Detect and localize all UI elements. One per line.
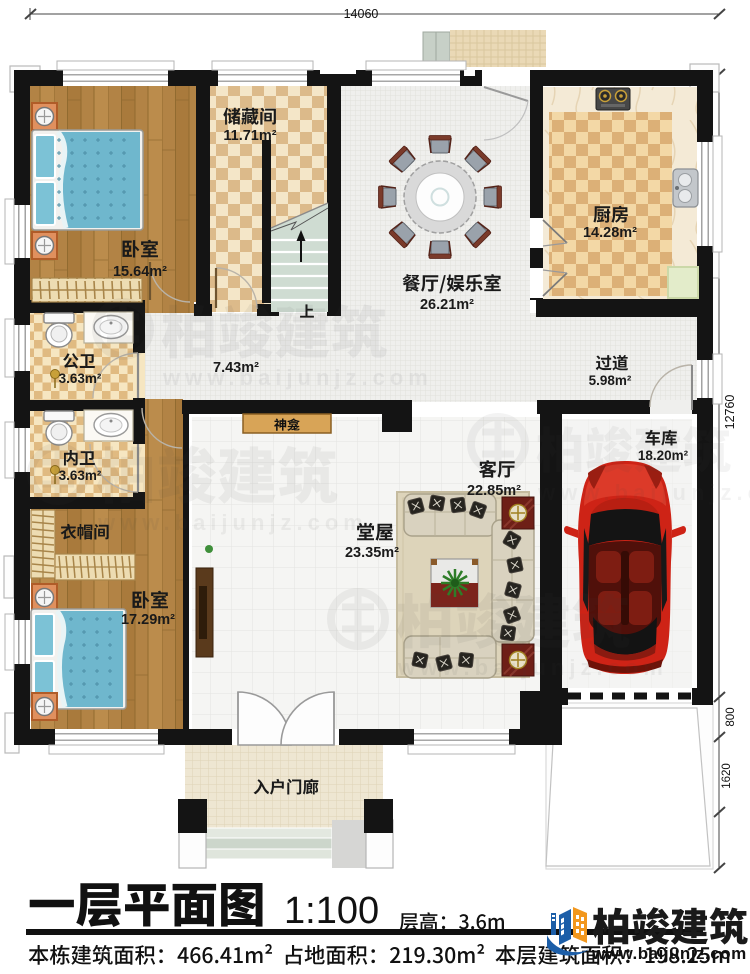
svg-text:5.98m²: 5.98m² (589, 373, 632, 388)
svg-text:12760: 12760 (723, 395, 737, 430)
svg-text:www.baijunjz.com: www.baijunjz.com (397, 655, 668, 680)
svg-text:26.21m²: 26.21m² (420, 297, 474, 313)
svg-text:www.baijunjz.com: www.baijunjz.com (162, 365, 433, 390)
svg-text:www.baijunjz.com: www.baijunjz.com (591, 944, 747, 963)
svg-text:14060: 14060 (344, 7, 379, 21)
svg-text:800: 800 (725, 707, 737, 726)
svg-text:15.64m²: 15.64m² (113, 264, 167, 280)
svg-text:www.baijunjz.com: www.baijunjz.com (97, 510, 368, 535)
svg-text:www.baijunjz.com: www.baijunjz.com (537, 480, 750, 505)
svg-text:3.63m²: 3.63m² (59, 371, 102, 386)
svg-text:22.85m²: 22.85m² (467, 483, 521, 499)
svg-text:17.29m²: 17.29m² (121, 612, 175, 628)
svg-text:1:100: 1:100 (284, 890, 379, 932)
svg-text:14.28m²: 14.28m² (583, 225, 637, 241)
svg-text:23.35m²: 23.35m² (345, 545, 399, 561)
svg-text:11.71m²: 11.71m² (223, 128, 276, 144)
svg-text:1620: 1620 (721, 763, 733, 789)
